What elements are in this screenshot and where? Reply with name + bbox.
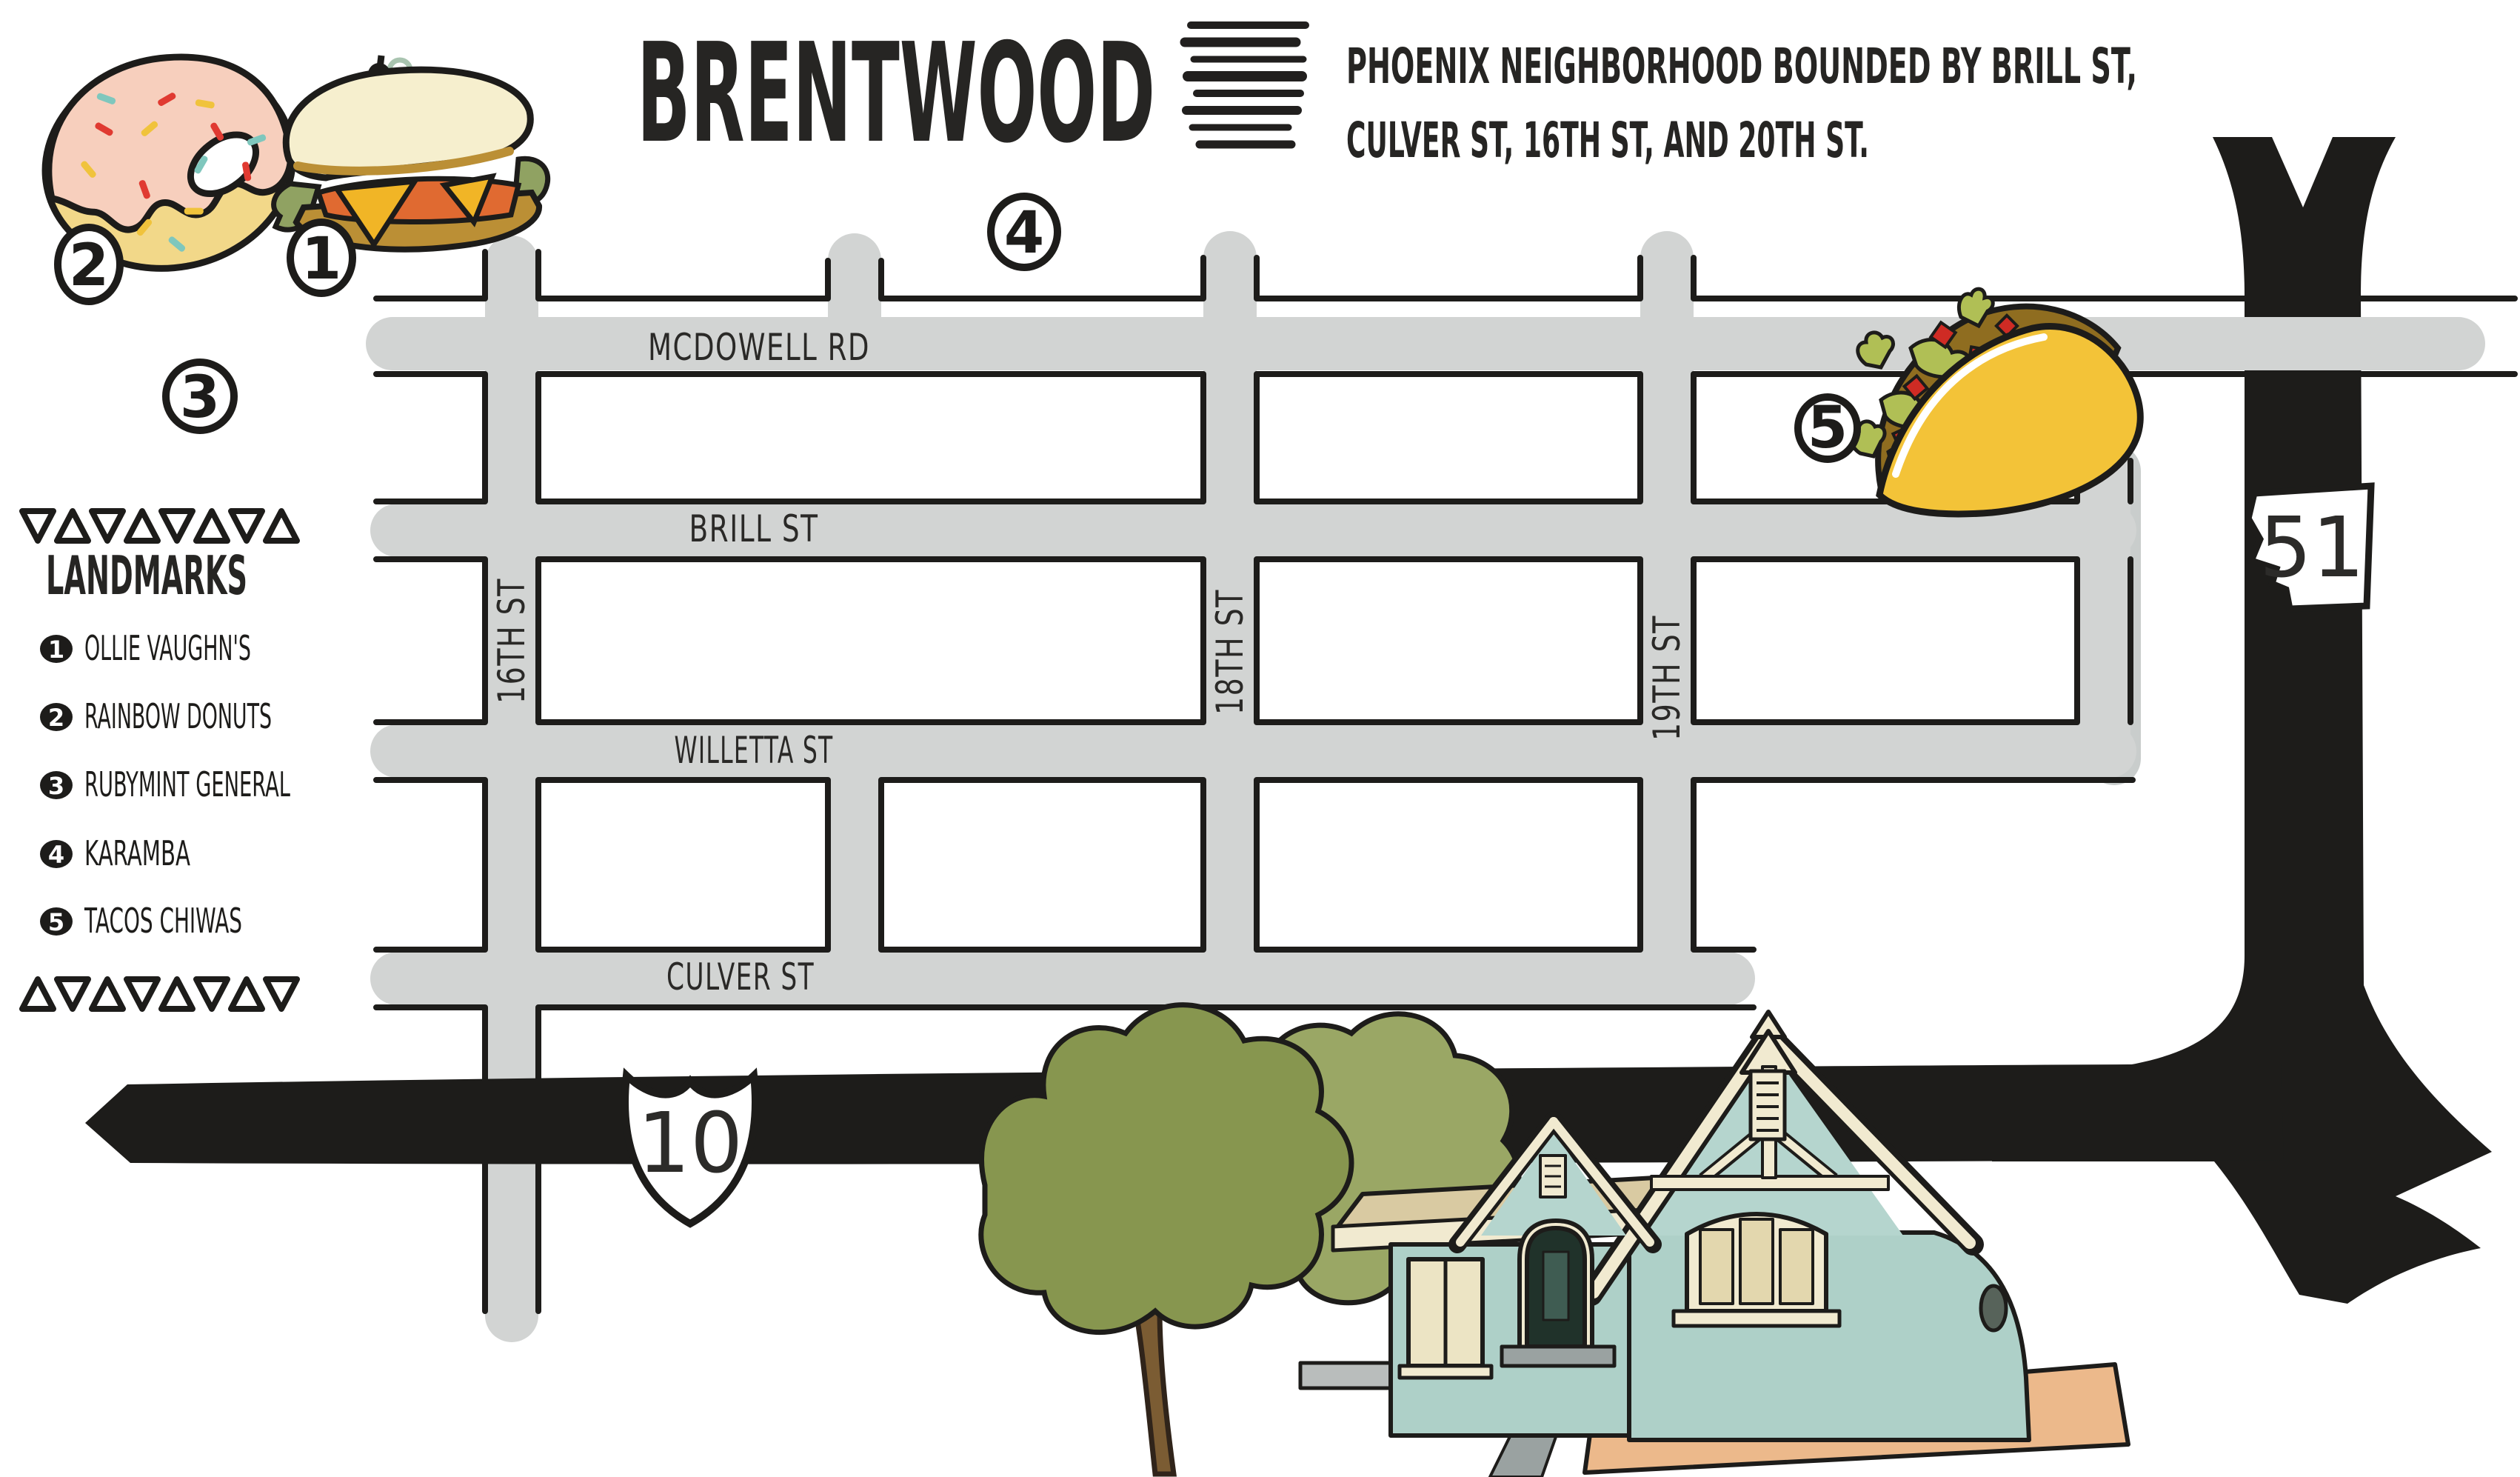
legend-item-4: 4 KARAMBA	[40, 833, 190, 873]
brentwood-map-poster: 10 51	[0, 0, 2520, 1477]
sprinkle	[184, 208, 204, 215]
highway-10-shield: 10	[625, 1076, 755, 1224]
label-18th: 18TH ST	[1209, 589, 1251, 715]
main-window-sill	[1674, 1311, 1839, 1326]
tree-foliage-dark	[981, 1005, 1351, 1333]
legend-border-top	[22, 511, 297, 541]
highway-51-number: 51	[2259, 500, 2365, 596]
legend-bullet-3-number: 3	[48, 772, 64, 800]
legend-item-2: 2 RAINBOW DONUTS	[40, 696, 272, 736]
label-16th: 16TH ST	[490, 578, 533, 704]
legend-bullet-4-number: 4	[48, 841, 64, 869]
marker-5-number: 5	[1808, 395, 1848, 461]
legend-label-2: RAINBOW DONUTS	[84, 696, 272, 736]
marker-2: 2	[58, 227, 120, 301]
door-step	[1502, 1347, 1614, 1366]
label-culver: CULVER ST	[666, 956, 815, 998]
legend-item-5: 5 TACOS CHIWAS	[40, 901, 242, 941]
marker-3-number: 3	[180, 364, 220, 431]
legend-label-4: KARAMBA	[84, 833, 190, 873]
marker-4-number: 4	[1004, 200, 1044, 267]
legend-border-bottom	[22, 979, 297, 1009]
house-main-window	[1674, 1214, 1839, 1326]
legend-item-3: 3 RUBYMINT GENERAL	[40, 764, 290, 804]
main-window-pane-center	[1740, 1219, 1773, 1304]
page-title: BRENTWOOD	[637, 13, 1155, 173]
title-block: BRENTWOOD PHOENIX NEIGHBORHOOD BOUNDED B…	[637, 13, 2137, 173]
map-canvas: 10 51	[0, 0, 2520, 1477]
marker-2-number: 2	[69, 233, 109, 299]
main-window-pane-right	[1780, 1230, 1813, 1304]
house-porch-vent	[1540, 1156, 1565, 1197]
legend-bullet-1-number: 1	[48, 636, 64, 664]
marker-4: 4	[991, 196, 1057, 267]
door-glass	[1543, 1252, 1568, 1320]
legend-label-3: RUBYMINT GENERAL	[84, 764, 290, 804]
subtitle-line-1: PHOENIX NEIGHBORHOOD BOUNDED BY BRILL ST…	[1346, 38, 2137, 95]
sandwich-top-bread	[286, 70, 530, 178]
label-mcdowell: MCDOWELL RD	[648, 326, 870, 369]
label-willetta: WILLETTA ST	[675, 729, 834, 772]
legend-label-5: TACOS CHIWAS	[84, 901, 242, 941]
title-scribble-lines	[1185, 25, 1306, 144]
marker-3: 3	[166, 362, 234, 431]
marker-5: 5	[1798, 395, 1857, 461]
highway-10-number: 10	[638, 1096, 743, 1192]
subtitle-line-2: CULVER ST, 16TH ST, AND 20TH ST.	[1346, 112, 1869, 169]
main-window-pane-left	[1700, 1230, 1733, 1304]
legend-item-1: 1 OLLIE VAUGHN'S	[40, 628, 251, 668]
house-oval-window	[1981, 1286, 2006, 1330]
marker-1: 1	[290, 222, 352, 293]
legend-bullet-5-number: 5	[48, 908, 64, 936]
marker-1-number: 1	[301, 226, 341, 293]
label-brill: BRILL ST	[689, 507, 819, 550]
house-left-window-sill	[1400, 1366, 1491, 1378]
legend-panel: LANDMARKS 1 OLLIE VAUGHN'S 2 RAINBOW DON…	[22, 511, 297, 1009]
house-gable-vent	[1751, 1071, 1785, 1139]
legend-label-1: OLLIE VAUGHN'S	[84, 628, 251, 668]
legend-heading: LANDMARKS	[46, 544, 247, 607]
legend-bullet-2-number: 2	[48, 704, 64, 732]
label-19th: 19TH ST	[1645, 615, 1688, 741]
street-labels: MCDOWELL RD BRILL ST WILLETTA ST CULVER …	[490, 326, 1688, 998]
highway-51-shield: 51	[2248, 486, 2371, 609]
